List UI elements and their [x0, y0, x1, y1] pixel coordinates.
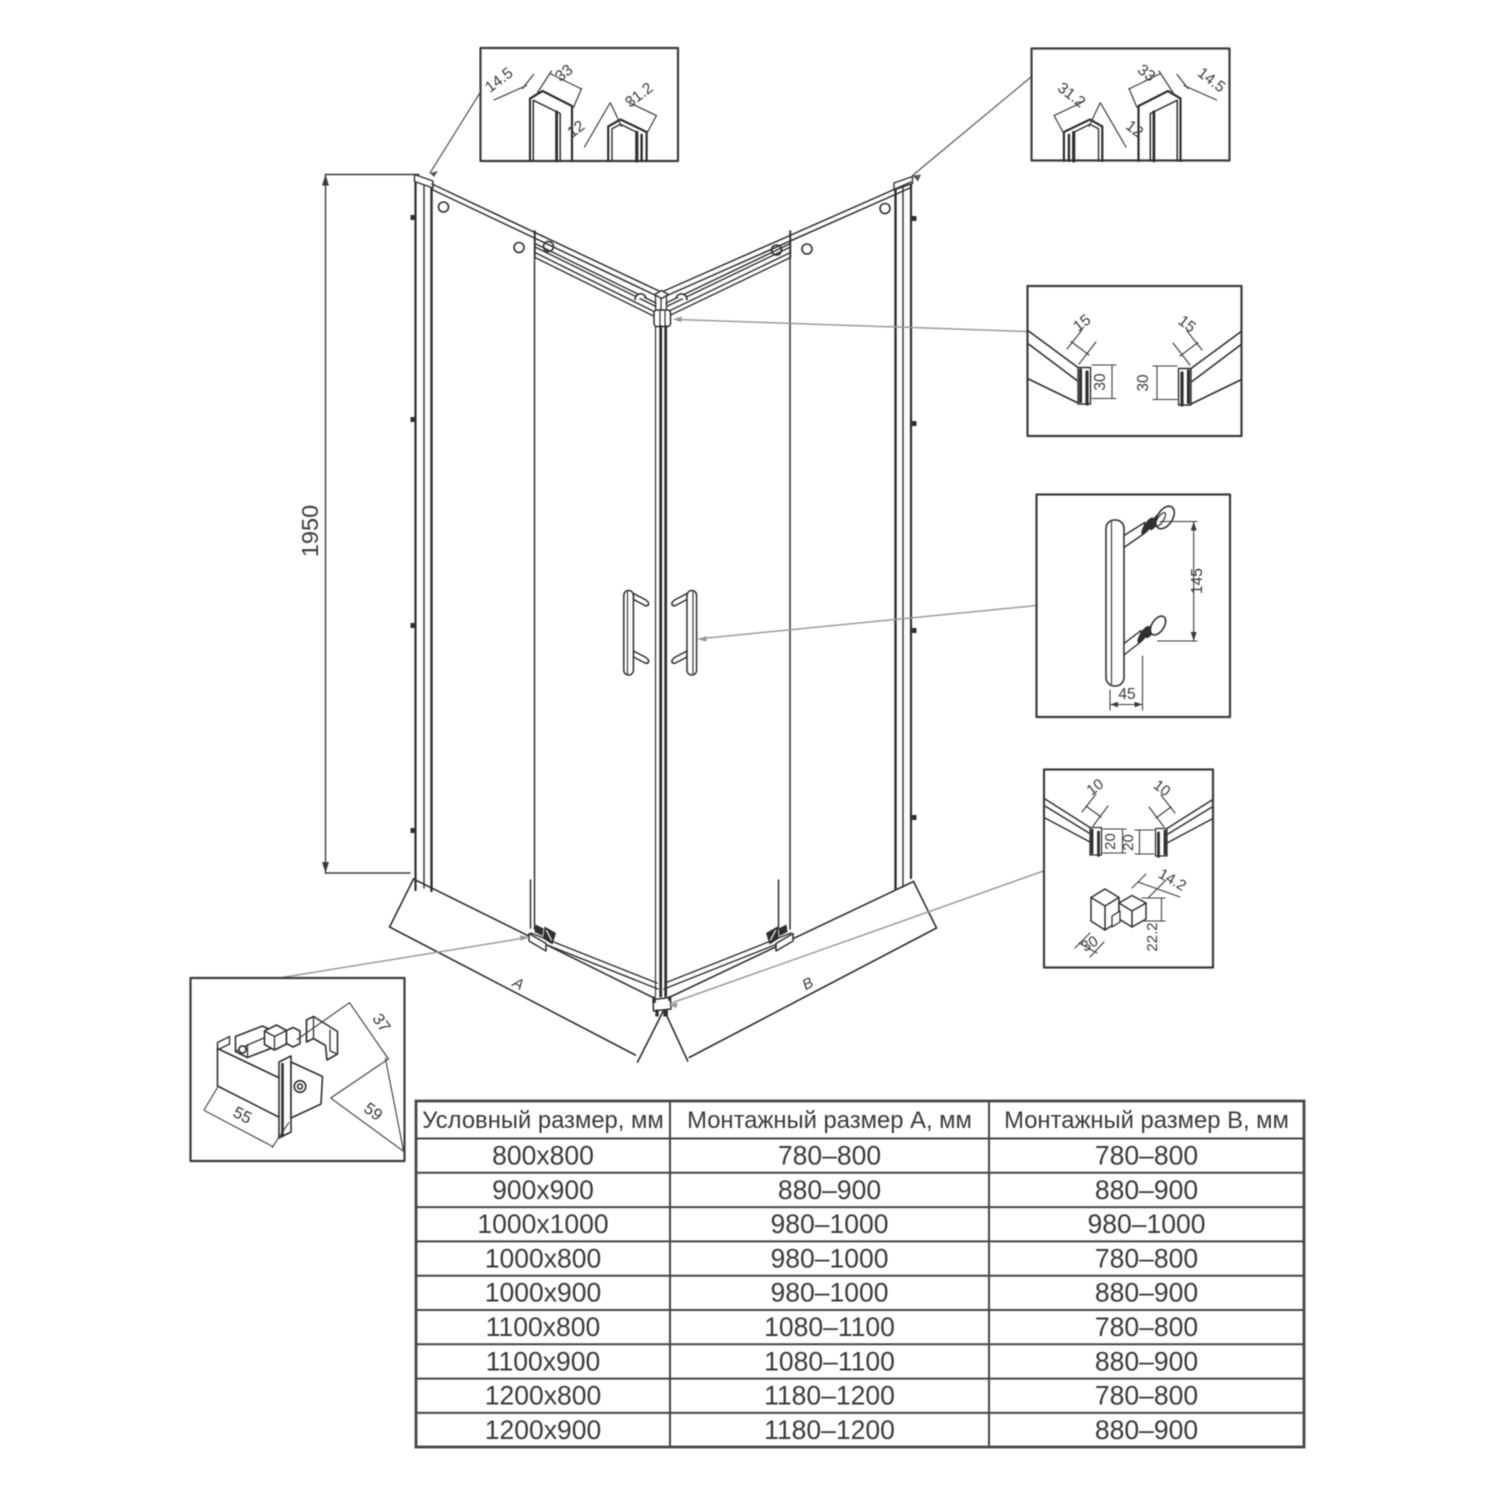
svg-text:22.2: 22.2: [1144, 922, 1161, 951]
svg-text:30: 30: [1135, 374, 1152, 392]
svg-text:1000х800: 1000х800: [485, 1243, 601, 1273]
svg-text:45: 45: [1118, 686, 1135, 703]
svg-text:1950: 1950: [297, 505, 323, 557]
svg-text:780–800: 780–800: [1095, 1141, 1198, 1171]
svg-text:800х800: 800х800: [492, 1141, 594, 1171]
svg-text:780–800: 780–800: [1095, 1381, 1198, 1411]
svg-text:1180–1200: 1180–1200: [764, 1381, 895, 1411]
svg-text:780–800: 780–800: [1095, 1312, 1198, 1342]
svg-text:880–900: 880–900: [1095, 1175, 1198, 1205]
svg-text:Монтажный размер В, мм: Монтажный размер В, мм: [1004, 1107, 1289, 1134]
svg-text:880–900: 880–900: [1095, 1415, 1198, 1445]
svg-text:1000х1000: 1000х1000: [477, 1209, 608, 1239]
svg-text:980–1000: 980–1000: [771, 1278, 889, 1308]
svg-text:980–1000: 980–1000: [771, 1243, 889, 1273]
svg-text:880–900: 880–900: [1095, 1278, 1198, 1308]
svg-text:900х900: 900х900: [492, 1175, 594, 1205]
svg-text:20: 20: [1102, 833, 1119, 850]
svg-text:1100х800: 1100х800: [486, 1312, 600, 1342]
svg-text:1200х800: 1200х800: [485, 1381, 601, 1411]
svg-text:Монтажный размер А, мм: Монтажный размер А, мм: [687, 1107, 972, 1134]
svg-text:1200х900: 1200х900: [485, 1415, 601, 1445]
svg-text:145: 145: [1189, 568, 1206, 594]
svg-text:1080–1100: 1080–1100: [764, 1312, 895, 1342]
svg-text:880–900: 880–900: [1095, 1346, 1198, 1376]
svg-text:980–1000: 980–1000: [1088, 1209, 1206, 1239]
svg-text:780–800: 780–800: [778, 1141, 881, 1171]
svg-text:1080–1100: 1080–1100: [764, 1346, 895, 1376]
svg-text:980–1000: 980–1000: [771, 1209, 889, 1239]
svg-text:1000х900: 1000х900: [485, 1278, 601, 1308]
svg-text:Условный размер, мм: Условный размер, мм: [422, 1107, 664, 1134]
svg-text:20: 20: [1120, 834, 1137, 851]
svg-text:780–800: 780–800: [1095, 1243, 1198, 1273]
svg-text:1100х900: 1100х900: [486, 1346, 600, 1376]
svg-text:30: 30: [1092, 373, 1109, 391]
svg-text:880–900: 880–900: [778, 1175, 881, 1205]
svg-text:1180–1200: 1180–1200: [764, 1415, 895, 1445]
